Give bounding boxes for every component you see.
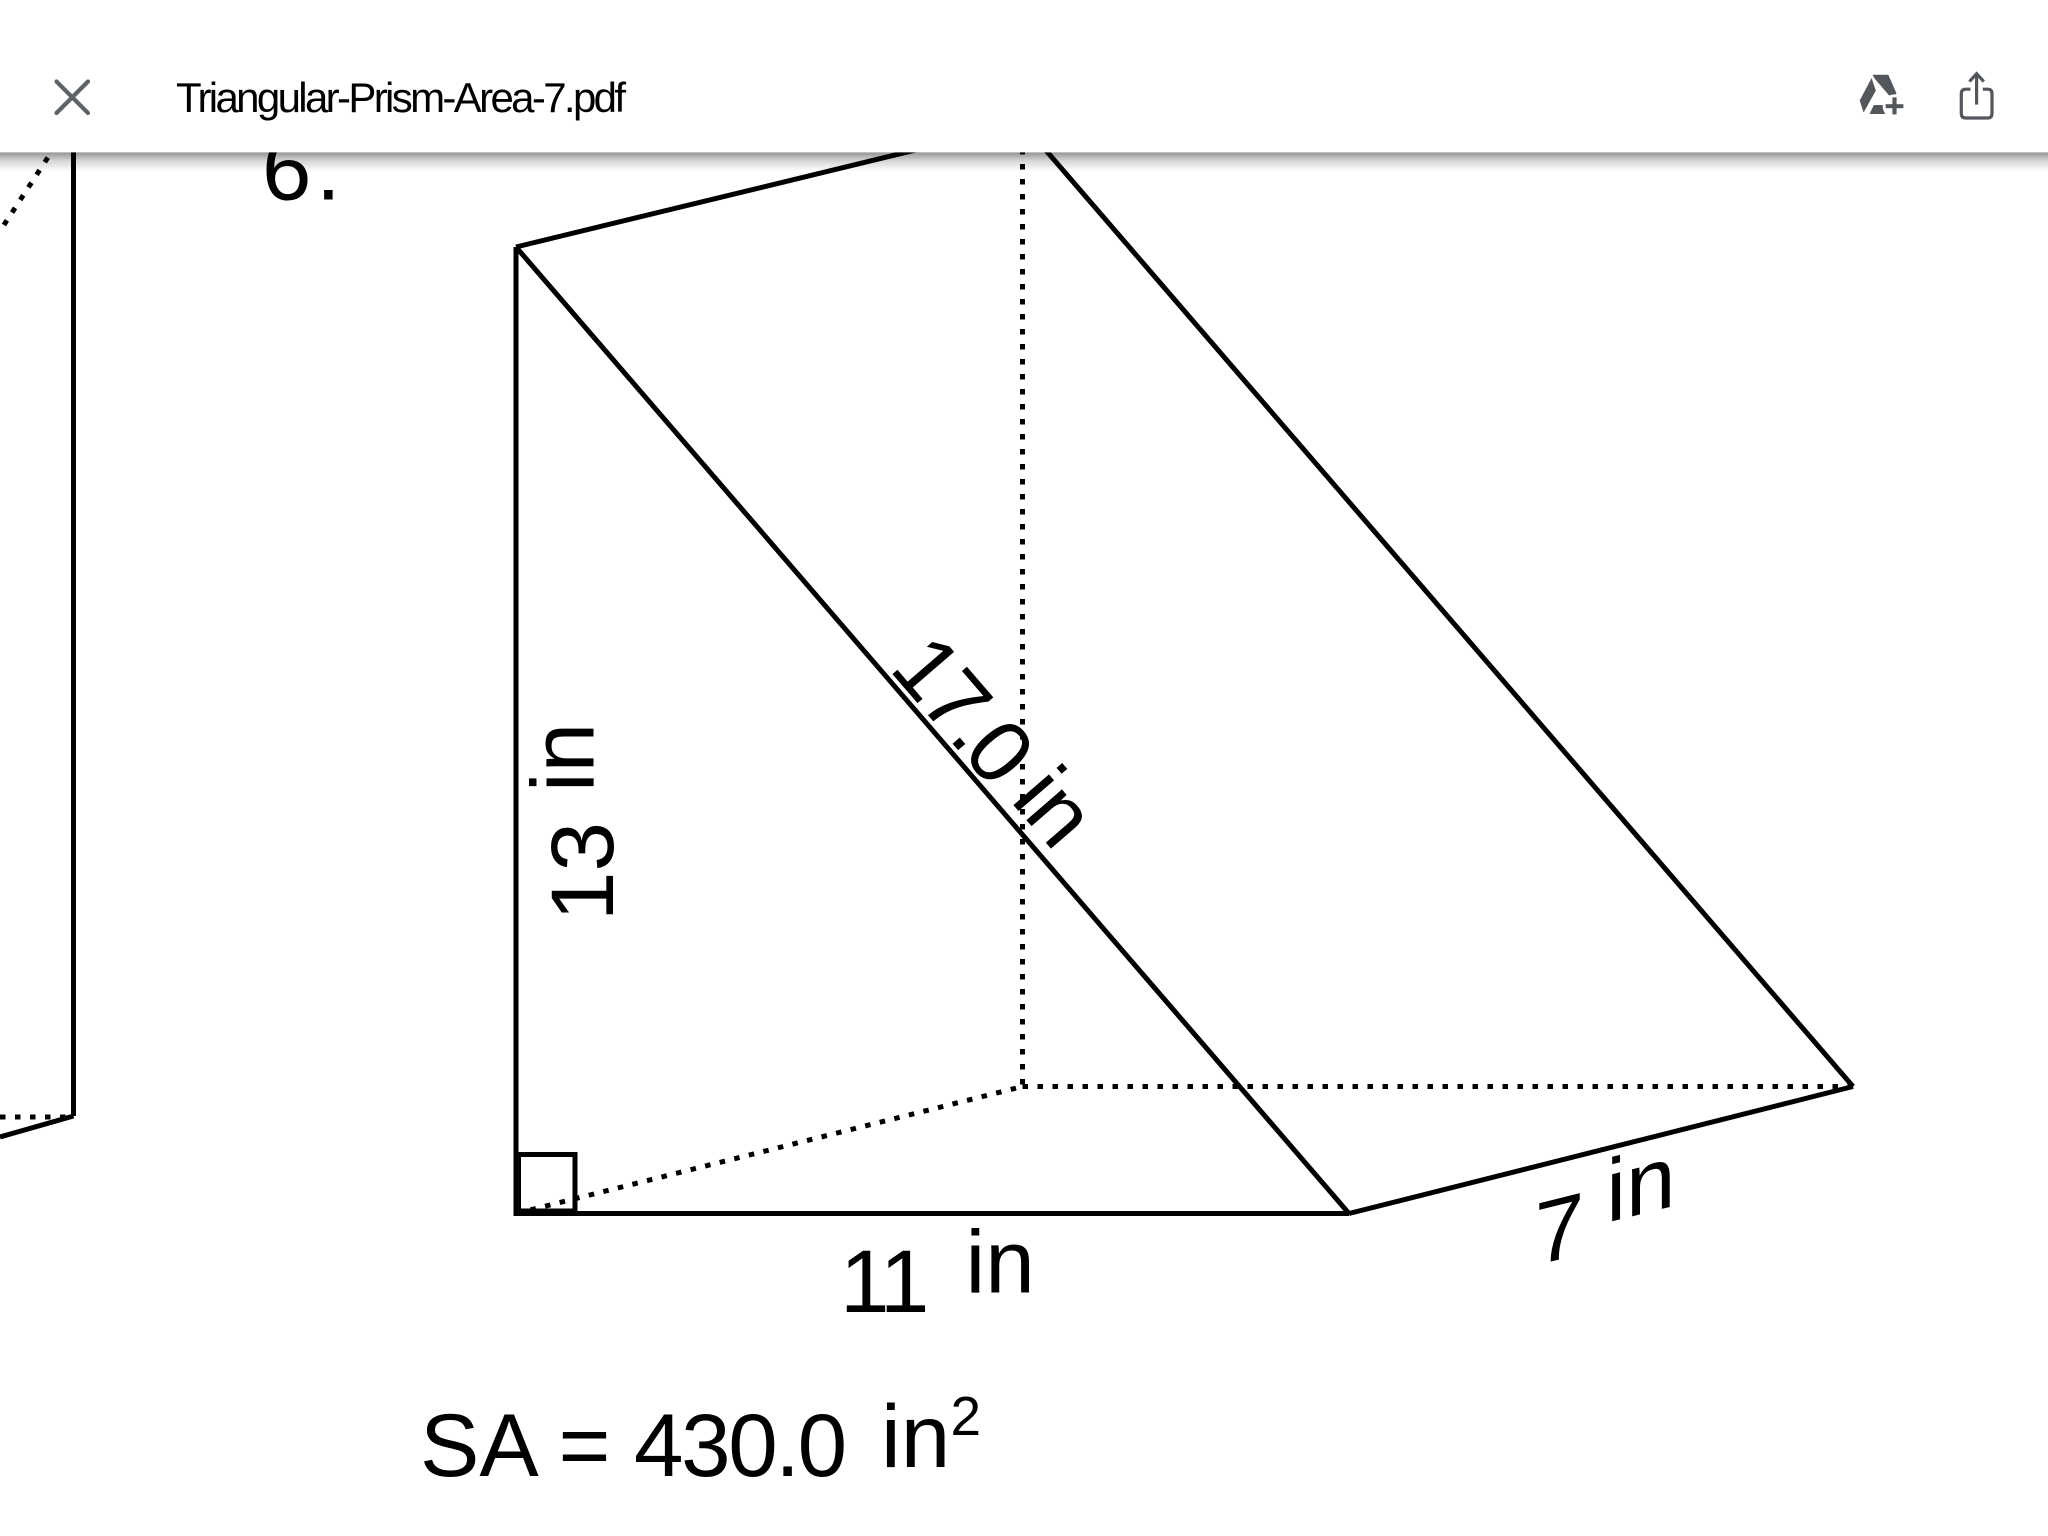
svg-text:SA =: SA =: [420, 1395, 611, 1495]
svg-text:13: 13: [532, 822, 632, 921]
svg-text:Triangular-Prism-Area-7.pdf: Triangular-Prism-Area-7.pdf: [176, 74, 626, 121]
svg-text:in: in: [1606, 1126, 1675, 1243]
svg-text:in: in: [513, 723, 613, 792]
svg-text:2: 2: [951, 1385, 982, 1447]
svg-text:7: 7: [1535, 1173, 1585, 1285]
svg-text:11: 11: [840, 1231, 926, 1331]
svg-text:in: in: [881, 1386, 950, 1486]
svg-text:in: in: [966, 1212, 1035, 1312]
svg-text:430.0: 430.0: [634, 1395, 845, 1495]
